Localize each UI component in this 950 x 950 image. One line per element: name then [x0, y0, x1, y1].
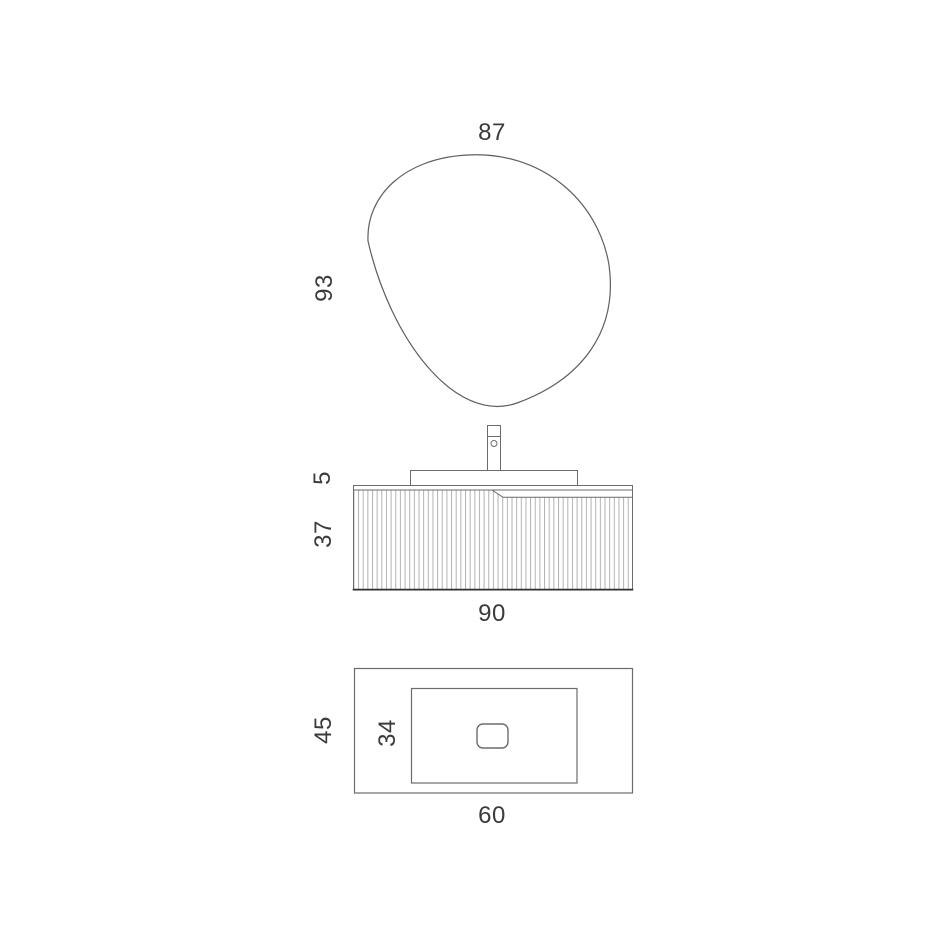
fluted-front: [354, 490, 633, 590]
vanity-front-view: [353, 426, 634, 590]
mirror-outline: [368, 155, 610, 407]
dim-cabinet-width: 90: [478, 602, 506, 626]
dim-cabinet-height: 37: [312, 520, 336, 548]
countertop: [411, 471, 578, 486]
technical-drawing: [0, 0, 950, 950]
cabinet: [353, 486, 634, 590]
dim-mirror-height: 93: [313, 274, 337, 302]
dim-plan-outer-depth: 45: [312, 716, 336, 744]
dim-plan-basin-depth: 34: [376, 719, 400, 747]
dim-plan-outer-width: 60: [478, 804, 506, 828]
technical-drawing-canvas: 87 93 5 37 90 45 34 60: [0, 0, 950, 950]
dim-countertop-height: 5: [311, 471, 335, 485]
faucet: [488, 426, 501, 471]
faucet-body: [488, 426, 501, 471]
mirror-front-view: [368, 155, 610, 407]
handle-recess: [492, 490, 633, 498]
plan-drain: [477, 724, 508, 748]
dim-mirror-width: 87: [478, 121, 506, 145]
